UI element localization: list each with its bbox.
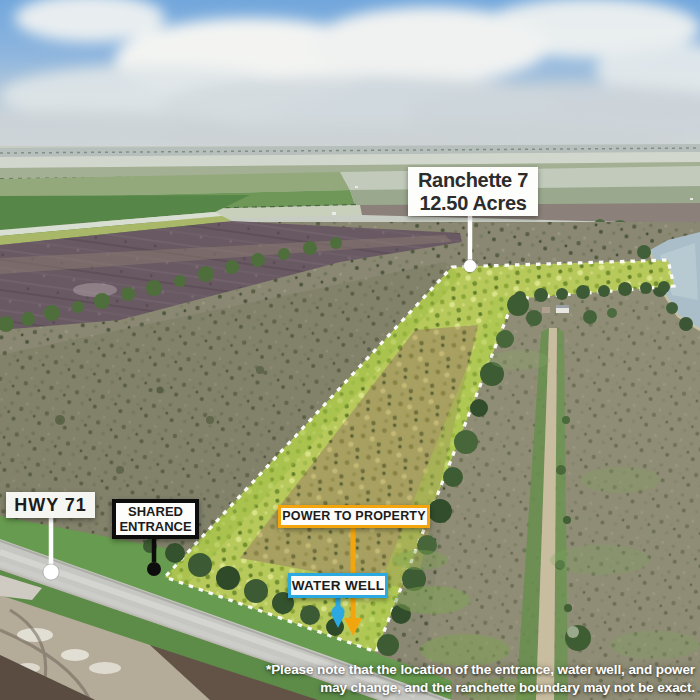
hwy71-pointer-dot	[43, 564, 59, 580]
highway-label: HWY 71	[6, 492, 95, 518]
property-pointer-dot	[464, 260, 477, 273]
disclaimer-line-1: *Please note that the location of the en…	[135, 661, 695, 679]
disclaimer-text: *Please note that the location of the en…	[135, 661, 695, 696]
property-size-label: Ranchette 7 12.50 Acres	[408, 167, 538, 216]
water-well-label: WATER WELL	[288, 573, 388, 598]
entrance-pointer-dot	[147, 562, 161, 576]
power-label: POWER TO PROPERTY	[278, 505, 430, 528]
aerial-listing-photo: Ranchette 7 12.50 Acres HWY 71 SHARED EN…	[0, 0, 700, 700]
property-name: Ranchette 7	[418, 169, 528, 192]
shared-entrance-label: SHARED ENTRANCE	[112, 499, 199, 539]
disclaimer-line-2: may change, and the ranchette boundary m…	[135, 679, 695, 697]
property-acreage: 12.50 Acres	[419, 192, 526, 215]
